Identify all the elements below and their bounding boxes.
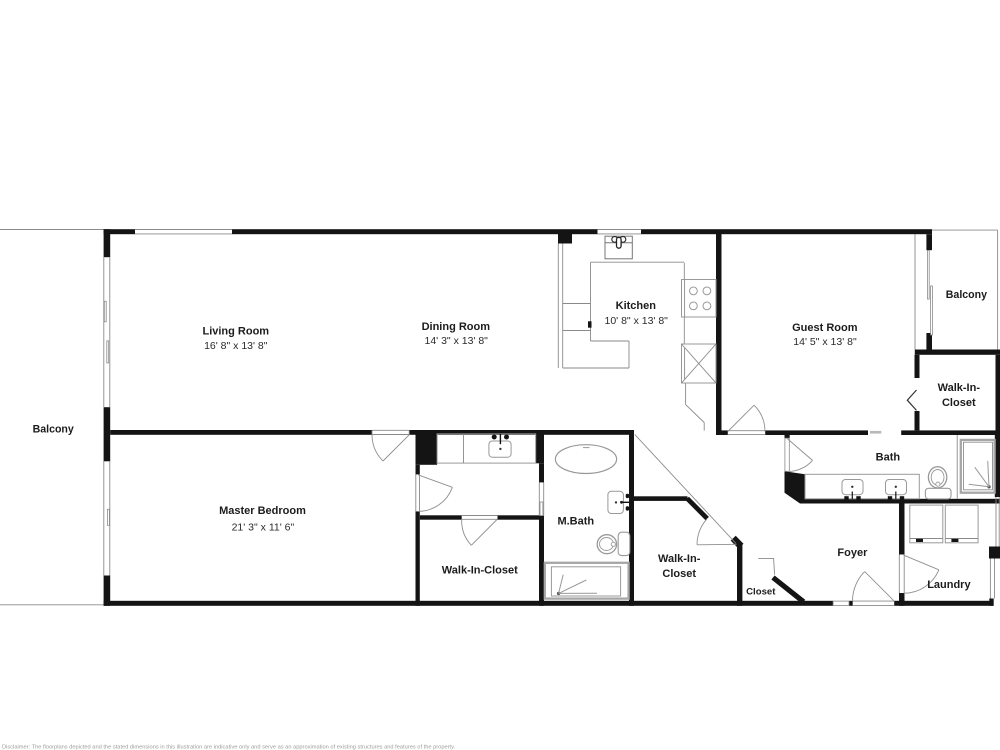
svg-text:Master Bedroom: Master Bedroom [219,505,306,517]
svg-text:Laundry: Laundry [927,579,971,591]
svg-text:14' 5" x 13' 8": 14' 5" x 13' 8" [793,336,857,348]
svg-text:Walk-In-: Walk-In- [938,382,981,394]
svg-text:Disclaimer: The floorplans dep: Disclaimer: The floorplans depicted and … [2,745,456,750]
svg-text:Foyer: Foyer [837,547,868,559]
svg-text:14' 3" x 13' 8": 14' 3" x 13' 8" [424,335,488,347]
svg-text:Dining Room: Dining Room [422,321,491,333]
svg-text:Bath: Bath [876,452,901,464]
svg-text:Balcony: Balcony [946,289,987,301]
svg-text:21' 3" x 11' 6": 21' 3" x 11' 6" [232,522,295,534]
svg-text:16' 8" x 13' 8": 16' 8" x 13' 8" [204,340,268,352]
svg-text:Closet: Closet [942,397,976,409]
svg-text:Kitchen: Kitchen [616,300,657,312]
svg-text:Guest Room: Guest Room [792,322,858,334]
svg-text:Walk-In-Closet: Walk-In-Closet [442,564,518,576]
svg-text:Balcony: Balcony [33,423,74,435]
svg-text:M.Bath: M.Bath [557,516,594,528]
svg-text:Closet: Closet [662,568,696,580]
svg-text:Closet: Closet [746,587,776,598]
svg-text:10' 8" x 13' 8": 10' 8" x 13' 8" [604,315,668,327]
svg-text:Living Room: Living Room [202,326,269,338]
svg-text:Walk-In-: Walk-In- [658,553,701,565]
